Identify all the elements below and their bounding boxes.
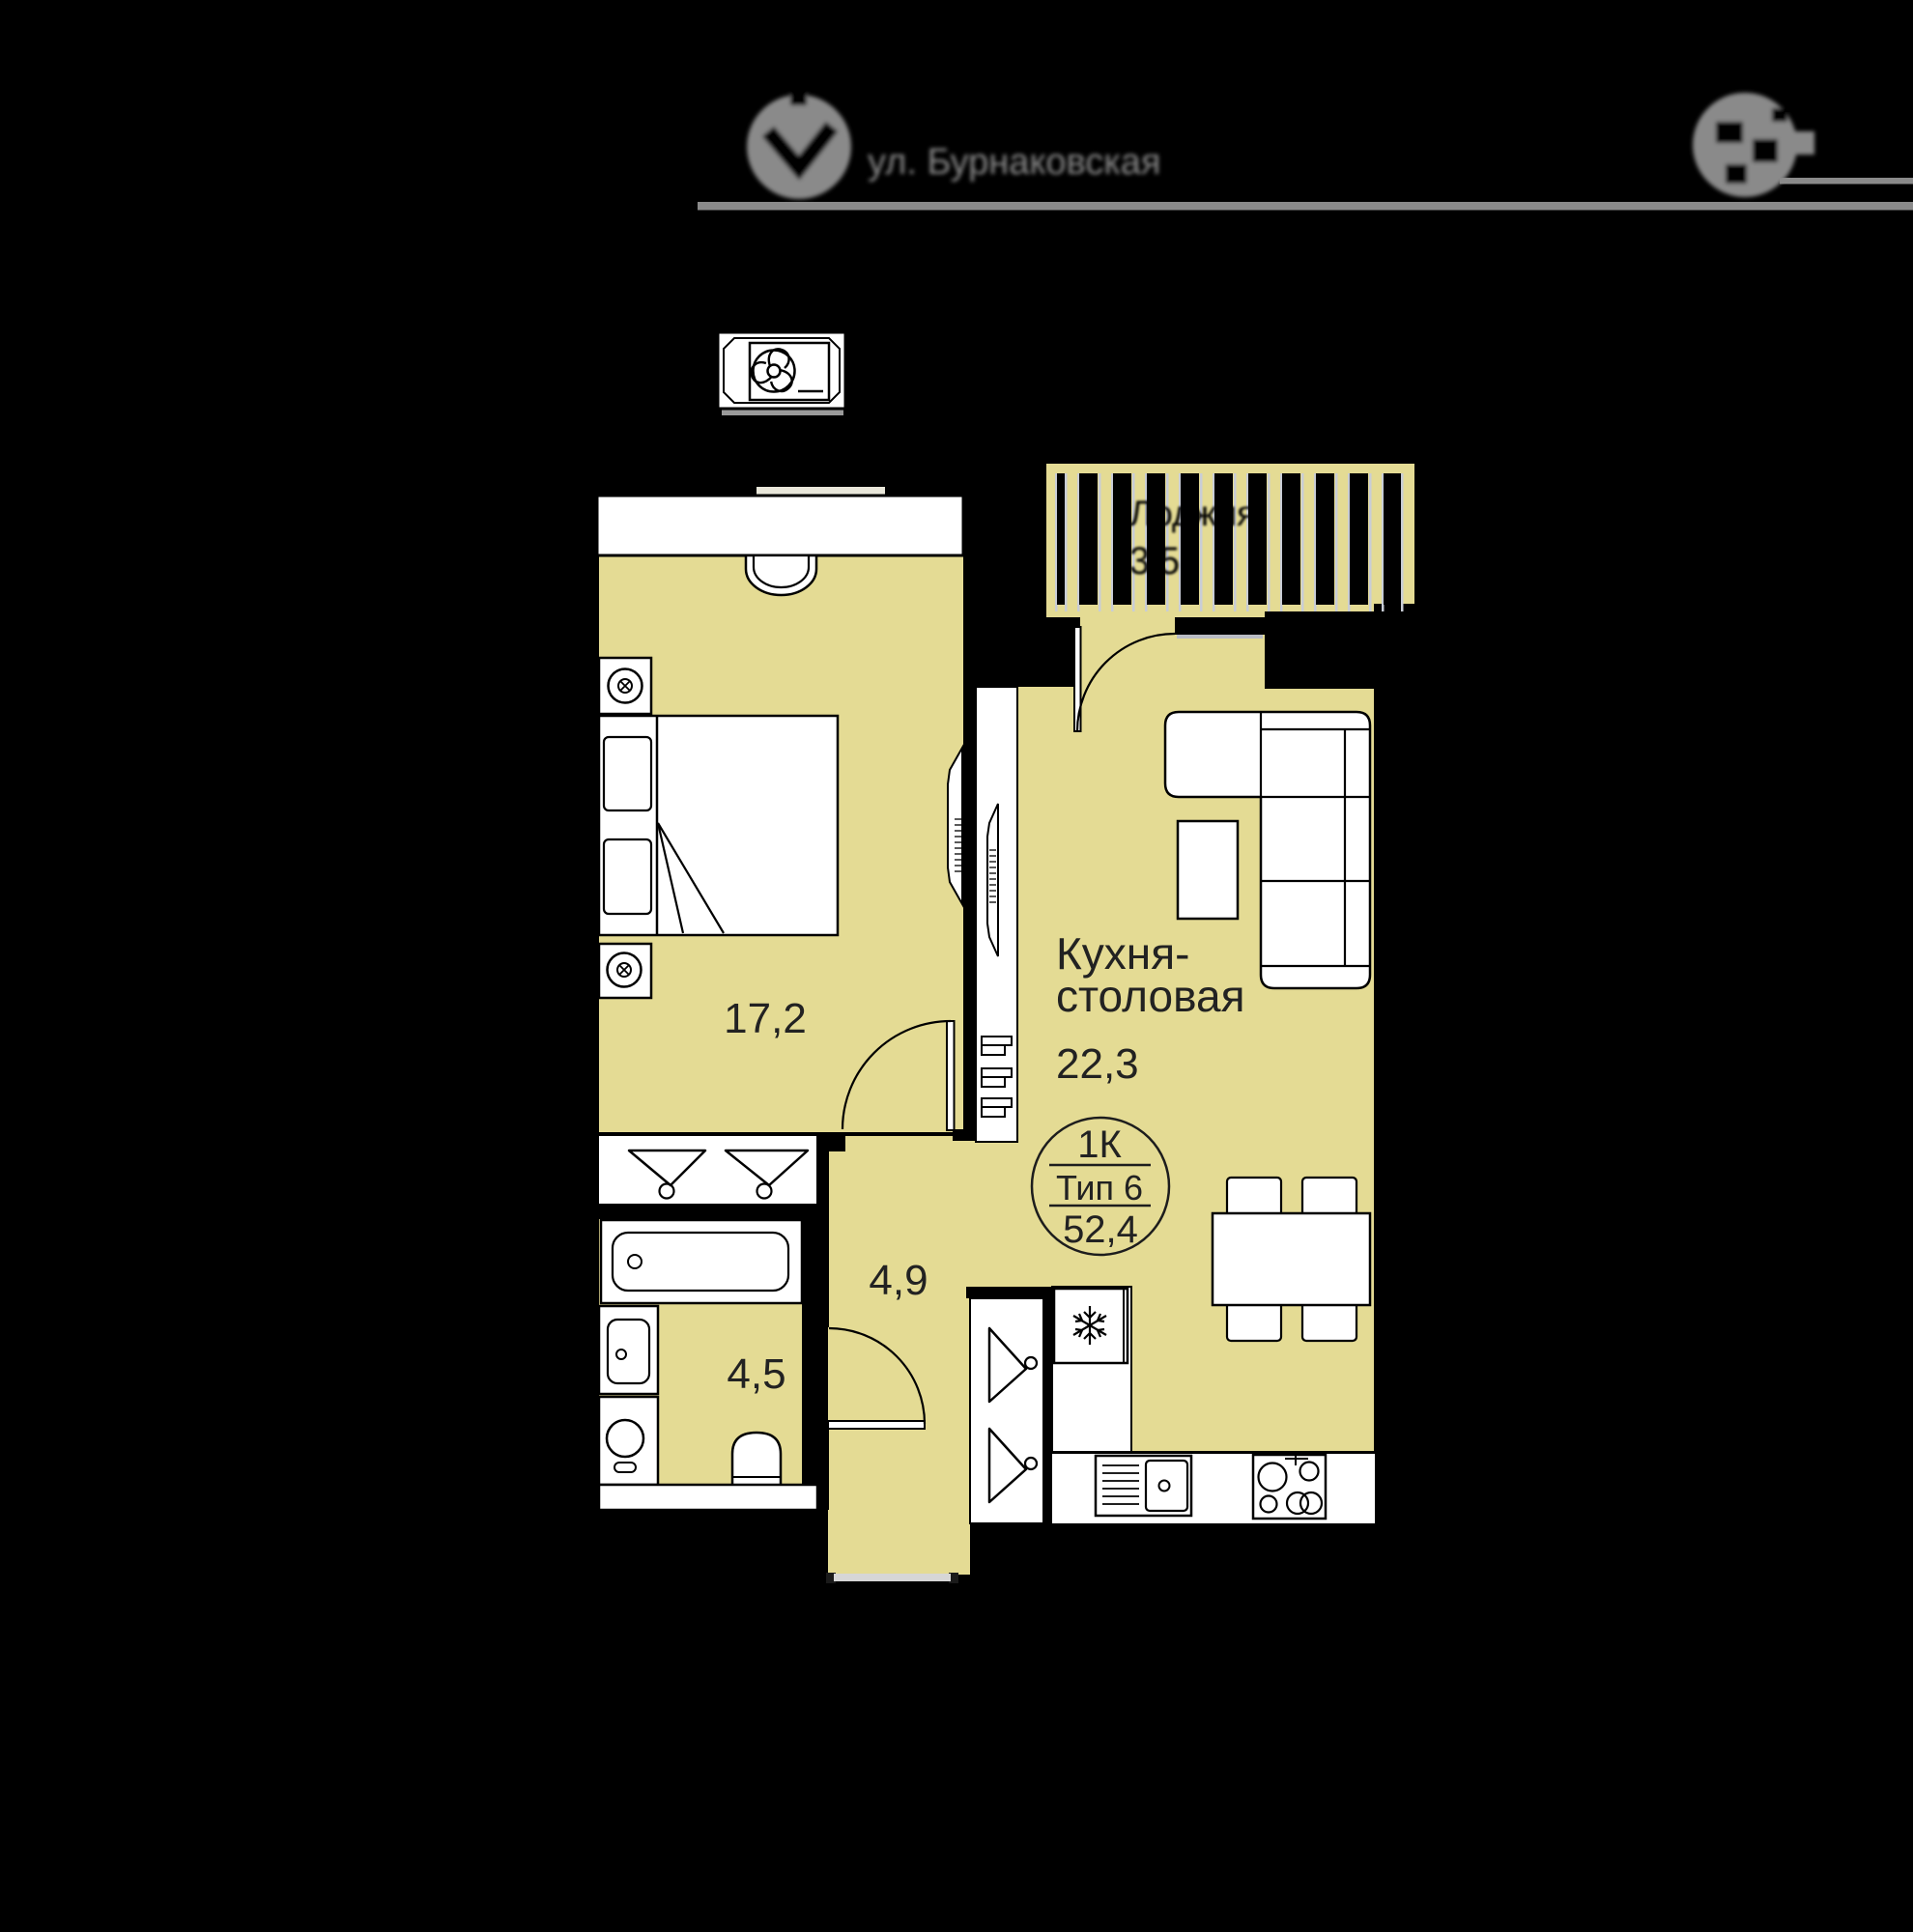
svg-text:17,2: 17,2	[724, 995, 807, 1042]
svg-text:52,4: 52,4	[1063, 1208, 1138, 1251]
svg-text:ул. Бурнаковская: ул. Бурнаковская	[868, 142, 1161, 183]
svg-text:столовая: столовая	[1056, 971, 1244, 1021]
svg-text:1К: 1К	[1077, 1123, 1122, 1166]
svg-text:Тип 6: Тип 6	[1056, 1168, 1143, 1207]
svg-text:3,5: 3,5	[1129, 540, 1180, 582]
svg-text:4,5: 4,5	[727, 1350, 785, 1398]
svg-text:22,3: 22,3	[1056, 1040, 1139, 1088]
svg-text:4,9: 4,9	[869, 1257, 928, 1304]
svg-text:Лоджия: Лоджия	[1129, 494, 1256, 533]
